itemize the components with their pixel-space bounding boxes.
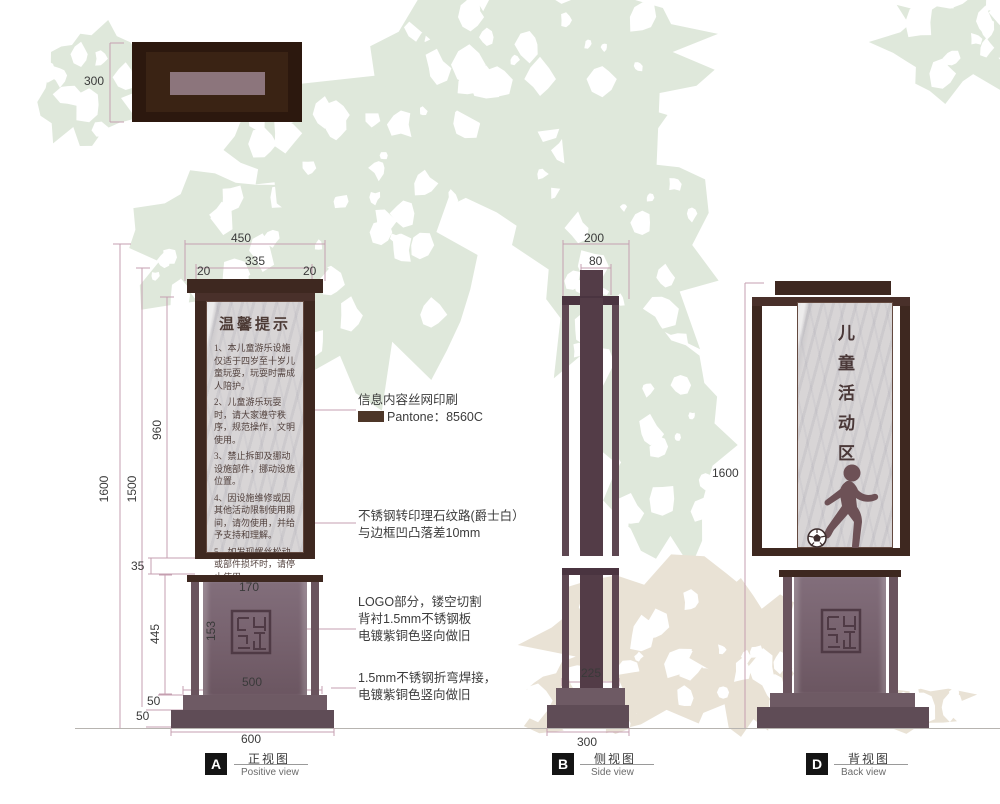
view-label-b-en: Side view bbox=[591, 767, 634, 778]
dim-500: 500 bbox=[242, 675, 262, 689]
front-frame-bottom-bar bbox=[195, 553, 315, 559]
dim-35: 35 bbox=[131, 559, 144, 573]
side-right-rail bbox=[612, 305, 619, 556]
dim-20-left: 20 bbox=[197, 264, 210, 278]
dim-960: 960 bbox=[150, 420, 164, 440]
view-label-a-en: Positive view bbox=[241, 767, 299, 778]
side-lower-left-rail bbox=[562, 575, 569, 688]
pantone-swatch bbox=[358, 411, 384, 422]
annotation-marble-line1: 不锈钢转印理石纹路(爵士白） bbox=[358, 508, 525, 525]
front-panel-item: 2、儿童游乐玩耍时，请大家遵守秩序，规范操作，文明使用。 bbox=[214, 396, 296, 446]
front-base-left-post bbox=[191, 582, 199, 695]
ground-line bbox=[75, 728, 1000, 729]
dim-335: 335 bbox=[245, 254, 265, 268]
dim-600: 600 bbox=[241, 732, 261, 746]
dim-1500: 1500 bbox=[125, 476, 139, 503]
front-plinth-step1 bbox=[183, 695, 327, 710]
back-base-top-rail bbox=[779, 570, 901, 577]
view-label-d-rule bbox=[834, 764, 908, 765]
side-base-top-rail bbox=[562, 568, 619, 575]
top-view-plan bbox=[132, 42, 302, 122]
dim-170: 170 bbox=[239, 580, 259, 594]
dim-450: 450 bbox=[231, 231, 251, 245]
side-plinth-step2 bbox=[547, 705, 629, 728]
dim-300-side: 300 bbox=[577, 735, 597, 749]
view-label-a-rule bbox=[234, 764, 308, 765]
dim-1600-front: 1600 bbox=[97, 476, 111, 503]
annotation-marble: 不锈钢转印理石纹路(爵士白） 与边框凹凸落差10mm bbox=[358, 508, 525, 542]
front-panel-item: 3、禁止拆卸及挪动设施部件，挪动设施位置。 bbox=[214, 450, 296, 488]
view-label-d-box: D bbox=[806, 753, 828, 775]
annotation-logo-line3: 电镀紫铜色竖向做旧 bbox=[358, 628, 482, 645]
annotation-weld-line2: 电镀紫铜色竖向做旧 bbox=[358, 687, 496, 704]
back-plinth-step1 bbox=[770, 693, 915, 707]
back-base-right-post bbox=[889, 577, 898, 693]
back-base-block bbox=[794, 577, 886, 693]
annotation-marble-line2: 与边框凹凸落差10mm bbox=[358, 525, 525, 542]
back-roof-bar bbox=[775, 281, 891, 295]
front-subroof-bar bbox=[195, 293, 315, 301]
back-right-post bbox=[900, 306, 910, 548]
back-frame-bottom-bar bbox=[752, 548, 910, 556]
dim-50-step2: 50 bbox=[136, 709, 149, 723]
annotation-print-line1: 信息内容丝网印刷 bbox=[358, 392, 483, 409]
dim-445: 445 bbox=[148, 624, 162, 644]
dim-20-right: 20 bbox=[303, 264, 316, 278]
back-panel-text: 儿童活动区 bbox=[832, 324, 857, 474]
view-label-b-rule bbox=[580, 764, 654, 765]
dim-153: 153 bbox=[204, 621, 218, 641]
annotation-logo: LOGO部分，镂空切割 背衬1.5mm不锈钢板 电镀紫铜色竖向做旧 bbox=[358, 594, 482, 645]
annotation-weld-line1: 1.5mm不锈钢折弯焊接， bbox=[358, 670, 496, 687]
view-label-d-en: Back view bbox=[841, 767, 886, 778]
dim-top-view-300: 300 bbox=[84, 74, 104, 88]
front-panel-item: 4、因设施维修或因其他活动限制使用期间，请勿使用，并给予支持和理解。 bbox=[214, 492, 296, 542]
dim-225: 225 bbox=[581, 666, 601, 680]
top-view-frame-ring bbox=[146, 52, 288, 112]
pantone-code: Pantone：8560C bbox=[387, 410, 483, 424]
annotation-print-line2: Pantone：8560C bbox=[358, 409, 483, 426]
front-marble-panel: 温馨提示 1、本儿童游乐设施仅适于四岁至十岁儿童玩耍，玩耍时需成人陪护。 2、儿… bbox=[206, 301, 304, 553]
front-panel-item: 1、本儿童游乐设施仅适于四岁至十岁儿童玩耍，玩耍时需成人陪护。 bbox=[214, 342, 296, 392]
side-lower-right-rail bbox=[612, 575, 619, 688]
side-plinth-step1 bbox=[556, 688, 625, 705]
side-left-rail bbox=[562, 305, 569, 556]
dim-50-step1: 50 bbox=[147, 694, 160, 708]
back-left-post bbox=[752, 306, 762, 548]
view-label-b-box: B bbox=[552, 753, 574, 775]
front-roof-bar bbox=[187, 279, 323, 293]
top-view-panel bbox=[170, 72, 265, 95]
annotation-weld: 1.5mm不锈钢折弯焊接， 电镀紫铜色竖向做旧 bbox=[358, 670, 496, 704]
back-base-left-post bbox=[783, 577, 792, 693]
front-base-right-post bbox=[311, 582, 319, 695]
dim-200: 200 bbox=[584, 231, 604, 245]
annotation-logo-line2: 背衬1.5mm不锈钢板 bbox=[358, 611, 482, 628]
view-label-a-box: A bbox=[205, 753, 227, 775]
dim-1600-back: 1600 bbox=[712, 466, 739, 480]
dim-80: 80 bbox=[589, 254, 602, 268]
annotation-print: 信息内容丝网印刷 Pantone：8560C bbox=[358, 392, 483, 426]
drawing-canvas: 300 bbox=[0, 0, 1000, 804]
front-panel-title: 温馨提示 bbox=[207, 313, 303, 334]
annotation-logo-line1: LOGO部分，镂空切割 bbox=[358, 594, 482, 611]
front-right-post bbox=[304, 301, 315, 559]
side-center-post bbox=[580, 298, 603, 556]
front-left-post bbox=[195, 301, 206, 559]
side-top-post bbox=[580, 270, 603, 298]
back-plinth-step2 bbox=[757, 707, 929, 728]
front-plinth-step2 bbox=[171, 710, 334, 728]
